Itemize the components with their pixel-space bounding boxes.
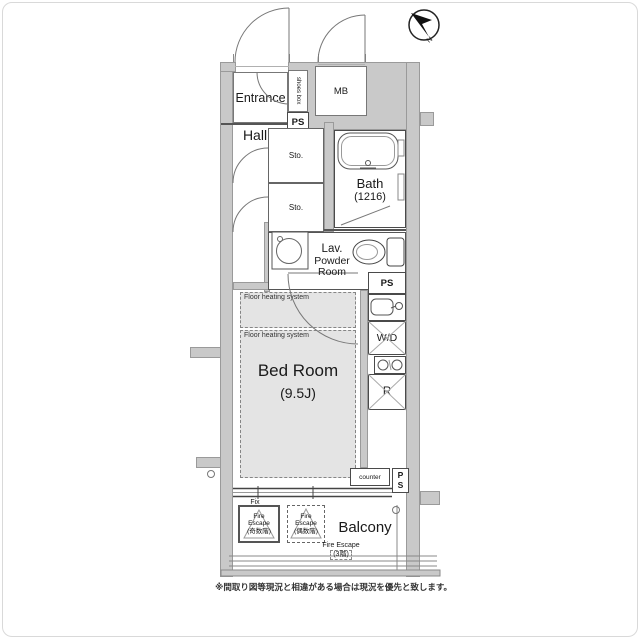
room-label: Room <box>318 267 346 279</box>
sto1-label: Sto. <box>289 151 303 160</box>
fe-even-line2: Escape <box>294 520 318 528</box>
counter-label: counter <box>359 474 381 481</box>
fe-even-line3: (偶数階) <box>294 528 318 536</box>
fire-escape-3f-wrap: Fire Escape (3階) <box>312 541 370 561</box>
wd-label: W/D <box>376 332 398 344</box>
wall-sto-bath <box>324 122 334 232</box>
floorplan-image: Entrance shoes box PS MB Hall Sto. Sto. … <box>0 0 640 639</box>
kitchen-sink-box <box>368 294 406 321</box>
ps-mid-label: PS <box>381 278 394 289</box>
entrance-label: Entrance <box>235 91 285 105</box>
wall-top-left <box>220 62 236 72</box>
washer-dryer-box: W/D <box>368 321 406 355</box>
floor-heating-1: Floor heating system <box>240 292 356 328</box>
r-label: R <box>382 386 392 398</box>
wall-protrusion-left-2 <box>196 457 221 468</box>
pipe-space-bottom: P S <box>392 468 409 493</box>
meter-box: MB <box>315 66 367 116</box>
fe-odd-line1: Fire <box>247 513 271 521</box>
ps-bottom-s: S <box>398 481 404 491</box>
wall-bedroom-right <box>360 290 368 468</box>
pipe-space-mid: PS <box>368 272 406 294</box>
hall-label: Hall <box>243 127 267 143</box>
sto2-label: Sto. <box>289 203 303 212</box>
fe3-line2: (3階) <box>330 550 352 560</box>
line-entrance-hall <box>221 123 289 125</box>
bath-label: Bath <box>357 176 384 191</box>
shoes-box: shoes box <box>288 70 308 112</box>
lav-label: Lav. <box>322 243 343 256</box>
wall-protrusion-right-1 <box>420 112 434 126</box>
hall-label-wrap: Hall <box>234 127 276 143</box>
room-bath: Bath (1216) <box>334 130 406 228</box>
wall-left <box>220 62 233 577</box>
bedroom-size-wrap: (9.5J) <box>238 384 358 402</box>
fire-escape-even: Fire Escape (偶数階) <box>287 505 325 543</box>
room-entrance: Entrance <box>233 72 288 123</box>
powder-label-wrap: Lav. Powder Room <box>306 233 358 289</box>
fh2-label: Floor heating system <box>244 332 309 339</box>
balcony-label: Balcony <box>338 519 391 536</box>
wall-protrusion-right-2 <box>420 491 440 505</box>
ps-top-label: PS <box>292 117 305 128</box>
footer-note: ※間取り図等現況と相違がある場合は現況を優先と致します。 <box>215 581 452 593</box>
fix-label-wrap: Fix <box>240 498 270 507</box>
stove-box <box>374 356 406 374</box>
bedroom-label-wrap: Bed Room <box>238 360 358 382</box>
bedroom-size-label: (9.5J) <box>280 385 316 401</box>
fix-label: Fix <box>250 499 259 506</box>
storage-1: Sto. <box>268 128 324 183</box>
fire-escape-odd: Fire Escape (奇数階) <box>238 505 280 543</box>
refrigerator-box: R <box>368 374 406 410</box>
fe-odd-line3: (奇数階) <box>247 528 271 536</box>
fe3-line1: Fire Escape <box>322 542 359 550</box>
fe-even-line1: Fire <box>294 513 318 521</box>
storage-2: Sto. <box>268 183 324 232</box>
footer-note-wrap: ※間取り図等現況と相違がある場合は現況を優先と致します。 <box>236 580 452 594</box>
wall-protrusion-left-1 <box>190 347 221 358</box>
counter-box: counter <box>350 468 390 486</box>
balcony-label-wrap: Balcony <box>330 517 400 537</box>
bedroom-label: Bed Room <box>258 361 338 381</box>
bath-size-label: (1216) <box>354 191 386 203</box>
floor-heating-2: Floor heating system <box>240 330 356 478</box>
mb-label: MB <box>334 86 348 97</box>
fe-odd-line2: Escape <box>247 520 271 528</box>
fh1-label: Floor heating system <box>244 294 309 301</box>
shoes-box-label: shoes box <box>294 77 302 104</box>
wall-right <box>406 62 420 577</box>
